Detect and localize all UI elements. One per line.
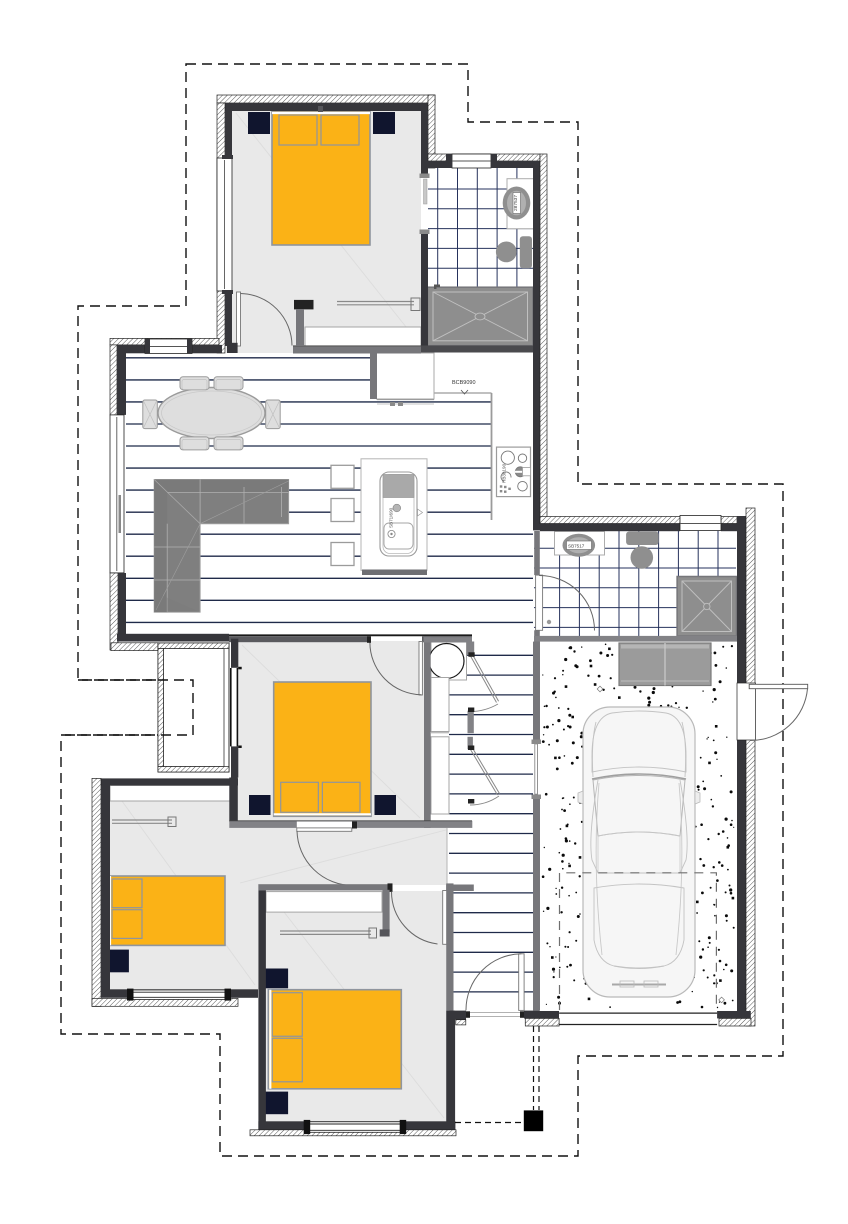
svg-text:SB71I690: SB71I690 [389, 507, 394, 528]
svg-text:BCB9090: BCB9090 [452, 380, 476, 386]
svg-text:RB30190: RB30190 [502, 463, 507, 483]
svg-text:287537: 287537 [513, 195, 519, 211]
svg-text:SB7517: SB7517 [568, 544, 585, 549]
